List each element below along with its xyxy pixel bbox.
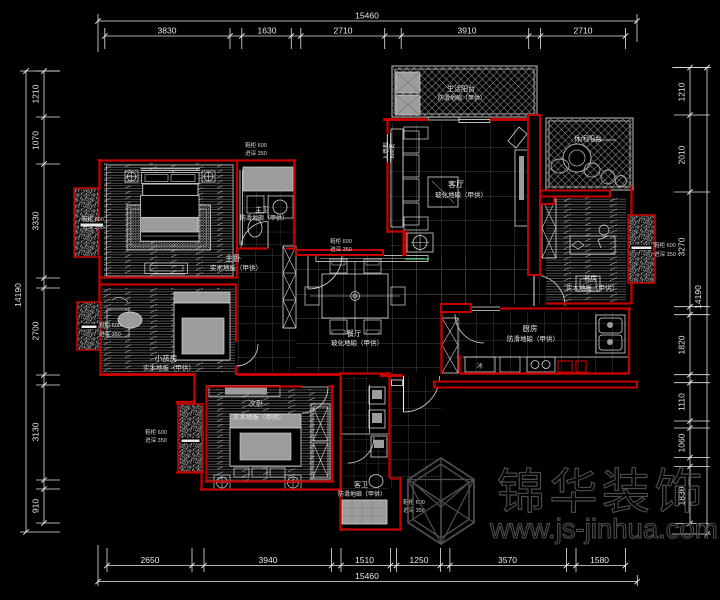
- svg-text:2650: 2650: [141, 555, 160, 565]
- svg-text:锦华装饰: 锦华装饰: [497, 466, 707, 519]
- svg-text:1070: 1070: [31, 131, 41, 150]
- svg-text:餐厅: 餐厅: [347, 329, 362, 338]
- svg-text:防滑地硠（甲供）: 防滑地硠（甲供）: [240, 214, 288, 222]
- svg-text:2710: 2710: [334, 26, 353, 36]
- svg-text:15460: 15460: [355, 571, 379, 581]
- svg-text:鞋柜 600: 鞋柜 600: [654, 241, 676, 249]
- svg-text:实木地板（甲供）: 实木地板（甲供）: [210, 263, 262, 272]
- svg-text:3910: 3910: [458, 26, 477, 36]
- svg-text:玻化地硠（甲供）: 玻化地硠（甲供）: [331, 338, 383, 347]
- svg-text:2700: 2700: [31, 321, 41, 340]
- svg-text:鞋柜 600: 鞋柜 600: [245, 141, 267, 149]
- svg-text:防滑地硠（甲供）: 防滑地硠（甲供）: [438, 94, 486, 102]
- svg-text:客厅: 客厅: [448, 179, 464, 189]
- svg-text:www.js-jinhua.com: www.js-jinhua.com: [489, 513, 718, 544]
- svg-text:客卫: 客卫: [354, 480, 368, 489]
- svg-text:15460: 15460: [355, 11, 379, 21]
- svg-text:1820: 1820: [677, 335, 687, 354]
- svg-text:主卫: 主卫: [255, 205, 269, 214]
- svg-text:入墙柜: 入墙柜: [382, 142, 390, 160]
- svg-text:进深 350: 进深 350: [330, 245, 352, 253]
- svg-text:2010: 2010: [677, 145, 687, 164]
- svg-text:2710: 2710: [574, 26, 593, 36]
- svg-text:进深 350: 进深 350: [82, 223, 104, 231]
- svg-text:次卧: 次卧: [249, 398, 264, 408]
- svg-text:3330: 3330: [31, 211, 41, 230]
- svg-text:1060: 1060: [677, 433, 687, 452]
- svg-text:进深 350: 进深 350: [245, 149, 267, 157]
- svg-text:小孩房: 小孩房: [155, 353, 178, 363]
- svg-text:1580: 1580: [590, 555, 609, 565]
- svg-text:防滑地硠（甲供）: 防滑地硠（甲供）: [338, 490, 386, 498]
- svg-text:1110: 1110: [677, 393, 687, 411]
- svg-text:厨房: 厨房: [523, 323, 538, 333]
- svg-text:主卧: 主卧: [225, 253, 241, 263]
- svg-text:3270: 3270: [677, 237, 687, 256]
- svg-text:进深 350: 进深 350: [654, 250, 676, 258]
- svg-text:14190: 14190: [13, 283, 23, 307]
- svg-text:书房: 书房: [583, 273, 598, 283]
- svg-text:鞋柜 600: 鞋柜 600: [330, 237, 352, 245]
- svg-text:休闲阳台: 休闲阳台: [574, 134, 602, 143]
- svg-text:生活阳台: 生活阳台: [447, 84, 475, 93]
- svg-text:1210: 1210: [31, 84, 41, 103]
- svg-text:1210: 1210: [677, 82, 687, 101]
- svg-text:14190: 14190: [693, 285, 703, 309]
- svg-text:910: 910: [31, 499, 41, 513]
- svg-text:鞋柜 600: 鞋柜 600: [99, 321, 121, 329]
- svg-text:鞋柜 600: 鞋柜 600: [82, 215, 104, 223]
- svg-text:600宽: 600宽: [388, 143, 396, 158]
- svg-text:1510: 1510: [355, 555, 374, 565]
- svg-text:3830: 3830: [158, 26, 177, 36]
- svg-text:进深 350: 进深 350: [99, 330, 121, 338]
- svg-text:1250: 1250: [410, 555, 429, 565]
- svg-text:1630: 1630: [258, 26, 277, 36]
- svg-text:实木地板（甲供）: 实木地板（甲供）: [566, 283, 618, 292]
- svg-text:防滑地硠（甲供）: 防滑地硠（甲供）: [507, 334, 559, 343]
- svg-text:实木地板（甲供）: 实木地板（甲供）: [233, 412, 285, 421]
- svg-text:3570: 3570: [498, 555, 517, 565]
- svg-text:进深 350: 进深 350: [145, 436, 167, 444]
- svg-text:实木地板（甲供）: 实木地板（甲供）: [143, 363, 195, 372]
- svg-text:3940: 3940: [259, 555, 278, 565]
- svg-text:鞋柜 600: 鞋柜 600: [145, 428, 167, 436]
- svg-text:冰: 冰: [477, 362, 483, 370]
- svg-text:玻化地硠（甲供）: 玻化地硠（甲供）: [435, 190, 487, 199]
- svg-text:3130: 3130: [31, 422, 41, 441]
